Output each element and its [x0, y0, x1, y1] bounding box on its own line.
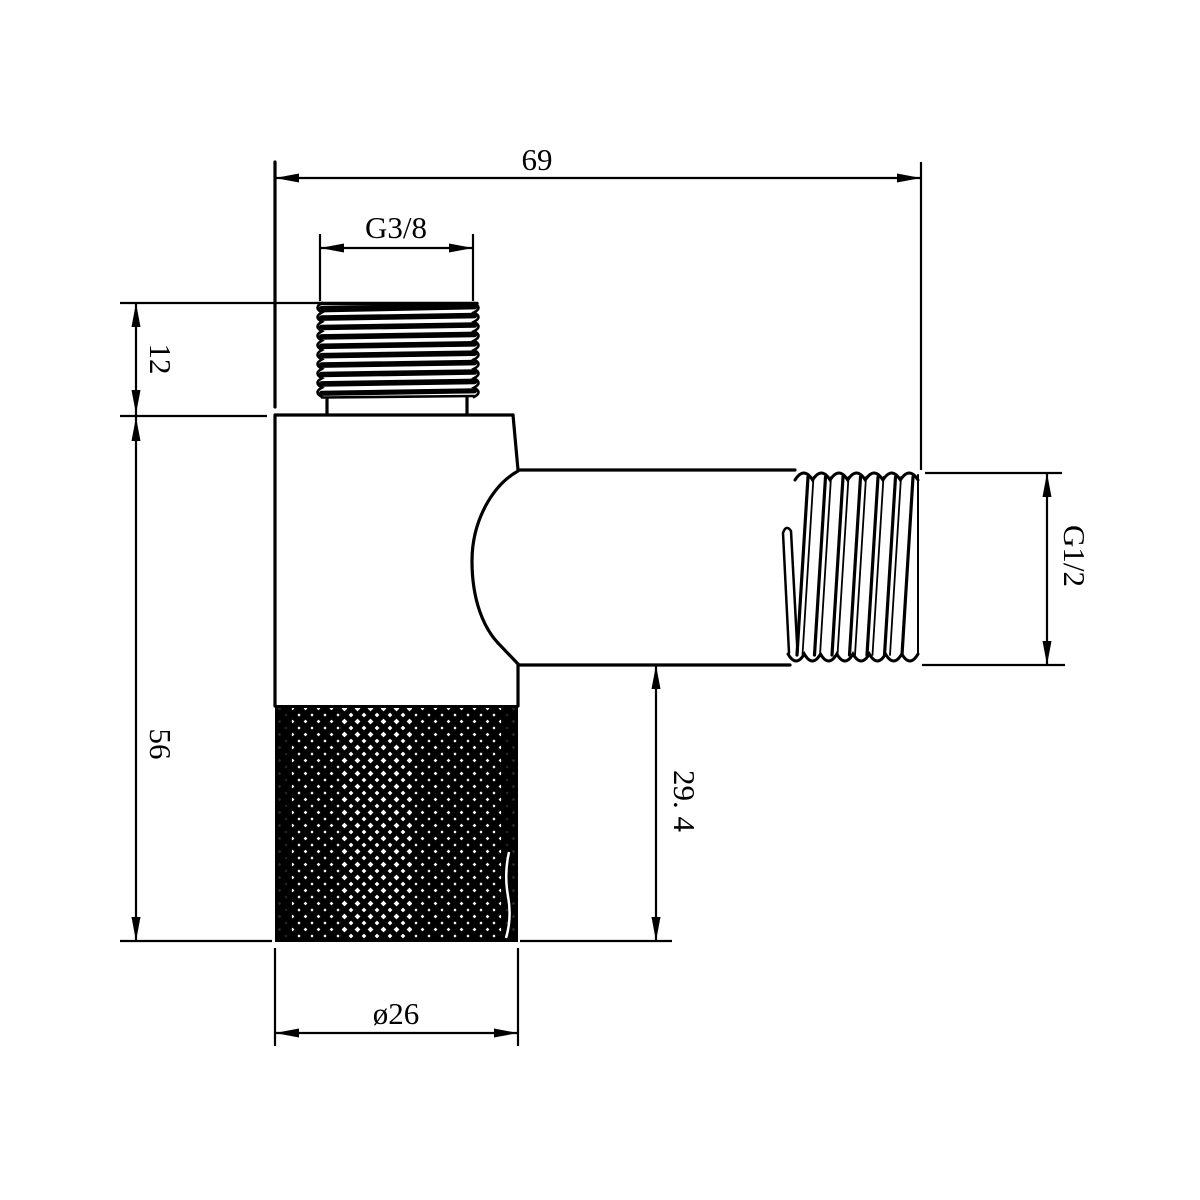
dim-inlet-height-label: 12: [143, 344, 178, 375]
dim-56-arrow-up: [132, 417, 141, 441]
outlet-thread-runout: [783, 528, 798, 653]
dim-outlet-offset-label: 29. 4: [667, 770, 702, 833]
drawing-sheet: 69 G3/8 12 56 G1/2 29. 4: [0, 0, 1200, 1200]
valve-technical-drawing: 69 G3/8 12 56 G1/2 29. 4: [0, 0, 1200, 1200]
dim-body-height-label: 56: [143, 729, 178, 760]
dim-outlet-thread-label: G1/2: [1057, 525, 1092, 587]
dim-26-arrow-right: [494, 1029, 518, 1038]
outlet-thread-g12: [783, 473, 918, 661]
body-pipe-fillet-arc: [472, 471, 518, 643]
dim-inlet-thread-label: G3/8: [365, 210, 427, 245]
inlet-thread-g38: [318, 303, 479, 398]
dim-g38-arrow-left: [320, 244, 344, 253]
dim-294-arrow-up: [652, 665, 661, 689]
dim-26-arrow-left: [275, 1029, 299, 1038]
dim-69-arrow-left: [275, 174, 299, 183]
dim-body-diameter-label: ø26: [373, 996, 420, 1031]
dim-total-width-label: 69: [522, 142, 553, 177]
knurl-left-shade: [276, 707, 292, 940]
dim-g12-arrow-up: [1043, 473, 1052, 497]
dim-outlet-offset: [520, 665, 672, 941]
dim-g38-arrow-right: [449, 244, 473, 253]
dim-69-arrow-right: [897, 174, 921, 183]
valve-outline: [275, 162, 795, 706]
knurled-handle: [276, 707, 517, 941]
dim-outlet-thread: [922, 473, 1065, 665]
dim-g12-arrow-down: [1043, 641, 1052, 665]
outlet-thread-bottom-crests: [788, 654, 918, 661]
dim-body-height: [120, 417, 272, 941]
dim-12-arrow-up: [132, 303, 141, 327]
fillet-bottom-chamfer: [498, 643, 519, 665]
dim-12-arrow-down: [132, 390, 141, 414]
dim-56-arrow-down: [132, 917, 141, 941]
body-chamfer: [513, 415, 518, 470]
dim-294-arrow-down: [652, 917, 661, 941]
knurl-highlight-band: [340, 708, 412, 939]
